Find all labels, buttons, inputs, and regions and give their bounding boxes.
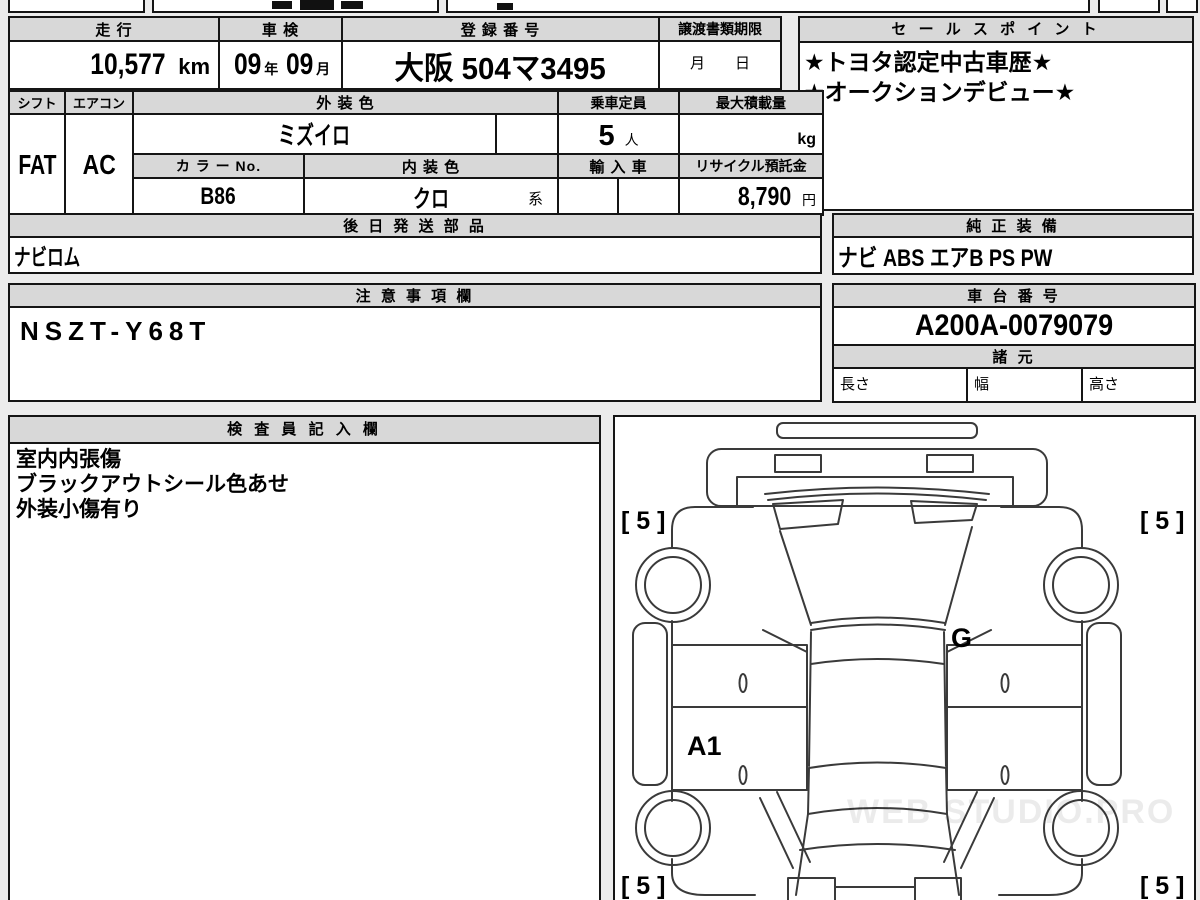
c-pillar-fold-left (760, 798, 793, 868)
cowl-arc (768, 494, 986, 501)
door-handle-mark (1002, 766, 1009, 784)
capacity-value: 5 (598, 120, 614, 153)
spec-height-cell: 高さ (1082, 368, 1195, 402)
top-partial-cell (446, 0, 1090, 13)
color-no-value: B86 (201, 183, 236, 211)
door-panel-left (672, 645, 807, 790)
spec-length-cell: 長さ (833, 368, 967, 402)
transfer-deadline-header: 譲渡書類期限 (659, 17, 781, 41)
mileage-value: 10,577 (90, 48, 165, 82)
wheel-front-right (1044, 548, 1118, 622)
inspection-value-cell: 09年 09月 (219, 41, 342, 89)
wheel-front-left-inner (645, 557, 701, 613)
mileage-unit: km (178, 54, 210, 79)
notes-value-cell: NSZT-Y68T (9, 307, 821, 401)
a-pillar-fold-left (763, 630, 807, 652)
hood-side-right (945, 527, 972, 625)
wheel-rear-left-inner (645, 800, 701, 856)
color-no-header: カ ラ ー No. (133, 154, 304, 178)
registration-value-cell: 大阪 504マ3495 (342, 41, 659, 89)
recycle-deposit-unit: 円 (802, 192, 816, 208)
mileage-header: 走 行 (9, 17, 219, 41)
clipped-text-fragment (497, 3, 513, 10)
later-parts-table: 後 日 発 送 部 品 ナビロム (8, 213, 822, 274)
chassis-value-cell: A200A-0079079 (833, 307, 1195, 345)
clipped-text-fragment (300, 0, 334, 10)
tire-mark-front-left: [ 5 ] (621, 507, 665, 535)
later-parts-value: ナビロム (9, 237, 821, 273)
headlight-left-shape (775, 455, 821, 472)
auction-sheet-page: 走 行 車 検 登 録 番 号 譲渡書類期限 10,577 km 09年 09月… (0, 0, 1200, 900)
shift-value: FAT (18, 149, 56, 181)
top-partial-cell (1098, 0, 1160, 13)
equipment-table: 純 正 装 備 ナビ ABS エアB PS PW (832, 213, 1194, 275)
registration-header: 登 録 番 号 (342, 17, 659, 41)
interior-color-header: 内 装 色 (304, 154, 558, 178)
rear-bumper-bar-shape (835, 887, 915, 900)
wheel-front-right-inner (1053, 557, 1109, 613)
sales-point-line: ★オークションデビュー★ (800, 77, 1192, 107)
transfer-deadline-cell: 月 日 (659, 41, 781, 89)
damage-label-g: G (951, 623, 972, 653)
exterior-color-value: ミズイロ (278, 116, 350, 152)
rear-bumper-left-shape (788, 878, 835, 900)
mileage-value-cell: 10,577 km (9, 41, 219, 89)
door-handle-mark (740, 766, 747, 784)
shift-value-cell: FAT (9, 114, 65, 215)
roof-front-arc (811, 625, 945, 631)
chassis-table: 車 台 番 号 A200A-0079079 諸 元 長さ 幅 高さ (832, 283, 1196, 403)
tire-mark-rear-left: [ 5 ] (621, 872, 665, 900)
headlight-right-shape (927, 455, 973, 472)
damage-label-a1: A1 (687, 731, 722, 761)
aircon-header: エアコン (65, 91, 133, 114)
capacity-header: 乗車定員 (558, 91, 679, 114)
clipped-text-fragment (341, 1, 363, 9)
notes-text: NSZT-Y68T (10, 308, 820, 347)
rear-fender-left (672, 859, 755, 895)
top-partial-cell (8, 0, 145, 13)
hatch-arc (800, 844, 955, 850)
sill-left-shape (633, 623, 667, 785)
vehicle-summary-table: 走 行 車 検 登 録 番 号 譲渡書類期限 10,577 km 09年 09月… (8, 16, 782, 90)
interior-color-value: クロ (413, 179, 449, 214)
shift-header: シフト (9, 91, 65, 114)
inspector-note-line: 外装小傷有り (16, 497, 593, 522)
door-handle-mark (1002, 674, 1009, 692)
sales-point-box: セ ー ル ス ポ イ ン ト ★トヨタ認定中古車歴★ ★オークションデビュー★ (798, 16, 1194, 211)
watermark-text: WEB STUDIO.PRO (847, 793, 1175, 831)
import-value-cell (618, 178, 679, 215)
transfer-month-suffix: 月 (690, 52, 705, 73)
clipped-text-fragment (272, 1, 292, 9)
exterior-color-header: 外 装 色 (133, 91, 558, 114)
spec-width-cell: 幅 (967, 368, 1082, 402)
roof-arc (811, 659, 944, 664)
sill-right-shape (1087, 623, 1121, 785)
top-partial-cell (1166, 0, 1198, 13)
roof-side-right (944, 632, 946, 766)
inspection-month: 09 (286, 48, 313, 82)
roof-rear-arc (809, 763, 946, 769)
later-parts-header: 後 日 発 送 部 品 (9, 214, 821, 237)
tire-mark-rear-right: [ 5 ] (1140, 872, 1184, 900)
rear-bumper-right-shape (915, 878, 961, 900)
inspection-month-unit: 月 (316, 61, 330, 77)
notes-header: 注 意 事 項 欄 (9, 284, 821, 307)
color-no-value-cell: B86 (133, 178, 304, 215)
roof-side-left (809, 632, 811, 766)
exterior-color-value-cell: ミズイロ (133, 114, 496, 154)
inspector-note-line: 室内内張傷 (16, 447, 593, 472)
max-load-header: 最大積載量 (679, 91, 823, 114)
inspector-note-line: ブラックアウトシール色あせ (16, 472, 593, 497)
interior-color-value-cell: クロ 系 (304, 178, 558, 215)
chassis-header: 車 台 番 号 (833, 284, 1195, 307)
c-pillar-fold-left (777, 792, 810, 862)
wheel-rear-left (636, 791, 710, 865)
windshield-left-shape (773, 500, 843, 529)
windshield-right-shape (911, 501, 977, 523)
notes-table: 注 意 事 項 欄 NSZT-Y68T (8, 283, 822, 402)
front-fender-left (672, 507, 753, 547)
import-value-cell (558, 178, 618, 215)
inspection-year-unit: 年 (264, 61, 278, 77)
later-parts-text: ナビロム (14, 238, 80, 272)
front-fender-right (1001, 507, 1082, 547)
equipment-text: ナビ ABS エアB PS PW (838, 238, 1052, 273)
car-condition-diagram: WEB STUDIO.PRO [ 5 ] [ 5 ] [ 5 ] [ 5 ] G… (615, 417, 1194, 900)
front-garnish-shape (777, 423, 977, 438)
rear-fender-right (999, 859, 1082, 895)
wheel-front-left (636, 548, 710, 622)
interior-color-suffix: 系 (528, 188, 543, 209)
top-partial-cell (152, 0, 439, 13)
recycle-deposit-value-cell: 8,790 円 (679, 178, 823, 215)
inspection-header: 車 検 (219, 17, 342, 41)
inspection-year: 09 (234, 48, 261, 82)
specs-header: 諸 元 (833, 345, 1195, 368)
import-header: 輸 入 車 (558, 154, 679, 178)
max-load-value-cell: kg (679, 114, 823, 154)
vehicle-detail-table: シフト エアコン 外 装 色 乗車定員 最大積載量 FAT AC ミズイロ 5 … (8, 90, 824, 216)
roof-front-arc (811, 618, 945, 624)
door-handle-mark (740, 674, 747, 692)
capacity-value-cell: 5 人 (558, 114, 679, 154)
aircon-value: AC (82, 149, 115, 181)
door-panel-right (947, 645, 1082, 790)
registration-value: 大阪 504マ3495 (395, 43, 606, 88)
chassis-number: A200A-0079079 (915, 309, 1113, 343)
inspector-notes-header: 検 査 員 記 入 欄 (10, 417, 599, 444)
car-diagram-box: WEB STUDIO.PRO [ 5 ] [ 5 ] [ 5 ] [ 5 ] G… (613, 415, 1196, 900)
equipment-header: 純 正 装 備 (833, 214, 1193, 237)
sales-point-header: セ ー ル ス ポ イ ン ト (800, 18, 1192, 43)
inspector-notes-box: 検 査 員 記 入 欄 室内内張傷 ブラックアウトシール色あせ 外装小傷有り (8, 415, 601, 900)
aircon-value-cell: AC (65, 114, 133, 215)
hood-side-left (780, 531, 811, 625)
sales-point-line: ★トヨタ認定中古車歴★ (800, 47, 1192, 77)
tire-mark-front-right: [ 5 ] (1140, 507, 1184, 535)
transfer-day-suffix: 日 (735, 52, 750, 73)
exterior-color-sub-cell (496, 114, 558, 154)
recycle-deposit-header: リサイクル預託金 (679, 154, 823, 178)
recycle-deposit-value: 8,790 (738, 181, 791, 212)
equipment-value: ナビ ABS エアB PS PW (833, 237, 1193, 274)
capacity-unit: 人 (625, 130, 639, 150)
